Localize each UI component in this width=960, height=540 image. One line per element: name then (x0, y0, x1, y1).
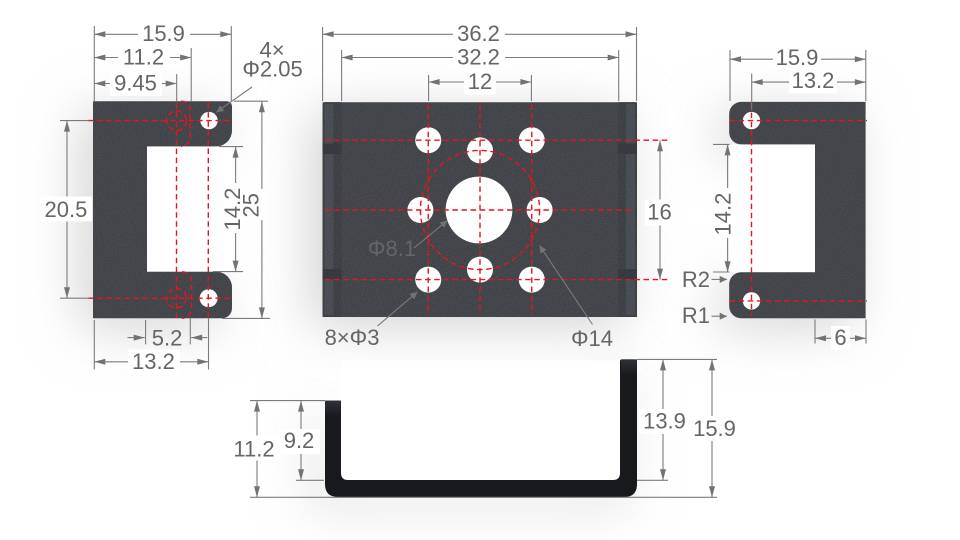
svg-text:9.2: 9.2 (284, 428, 315, 453)
svg-text:11.2: 11.2 (233, 437, 274, 462)
svg-text:Φ2.05: Φ2.05 (242, 56, 302, 81)
svg-text:14.2: 14.2 (710, 193, 735, 236)
svg-text:11.2: 11.2 (123, 44, 164, 69)
svg-text:20.5: 20.5 (44, 197, 87, 222)
svg-text:9.45: 9.45 (114, 70, 157, 95)
svg-text:8×Φ3: 8×Φ3 (325, 325, 380, 350)
svg-text:13.2: 13.2 (792, 68, 835, 93)
svg-text:5.2: 5.2 (152, 326, 183, 351)
svg-text:36.2: 36.2 (457, 21, 500, 46)
svg-text:R2: R2 (682, 267, 710, 292)
svg-text:25: 25 (238, 193, 263, 217)
svg-text:15.9: 15.9 (776, 45, 819, 70)
svg-text:6: 6 (834, 325, 846, 350)
svg-text:32.2: 32.2 (457, 44, 500, 69)
svg-text:13.9: 13.9 (643, 409, 686, 434)
svg-text:Φ8.1: Φ8.1 (368, 236, 416, 261)
svg-text:12: 12 (468, 69, 492, 94)
svg-text:15.9: 15.9 (142, 21, 185, 46)
svg-text:15.9: 15.9 (693, 416, 736, 441)
svg-text:13.2: 13.2 (132, 349, 175, 374)
svg-text:Φ14: Φ14 (571, 326, 613, 351)
svg-text:16: 16 (647, 200, 671, 225)
svg-text:R1: R1 (682, 303, 710, 328)
